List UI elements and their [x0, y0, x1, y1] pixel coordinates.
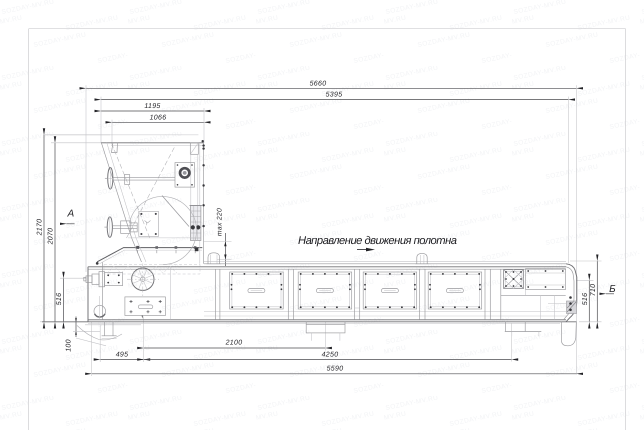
svg-text:5395: 5395	[326, 92, 343, 99]
svg-text:max 220: max 220	[217, 208, 224, 236]
svg-text:100: 100	[65, 339, 72, 352]
svg-text:710: 710	[590, 284, 597, 297]
svg-text:Направление движения полотна: Направление движения полотна	[298, 235, 457, 247]
svg-text:А: А	[67, 209, 75, 220]
svg-text:4250: 4250	[322, 351, 339, 358]
svg-text:1195: 1195	[144, 103, 160, 110]
svg-text:2070: 2070	[47, 228, 54, 246]
svg-text:5590: 5590	[327, 366, 344, 373]
svg-text:1066: 1066	[150, 114, 167, 121]
svg-text:2170: 2170	[36, 219, 43, 237]
svg-text:Б: Б	[609, 284, 616, 295]
svg-text:2100: 2100	[225, 340, 243, 347]
svg-text:495: 495	[116, 351, 129, 358]
svg-text:516: 516	[56, 293, 63, 306]
svg-text:5660: 5660	[310, 80, 327, 87]
svg-text:516: 516	[582, 293, 589, 306]
